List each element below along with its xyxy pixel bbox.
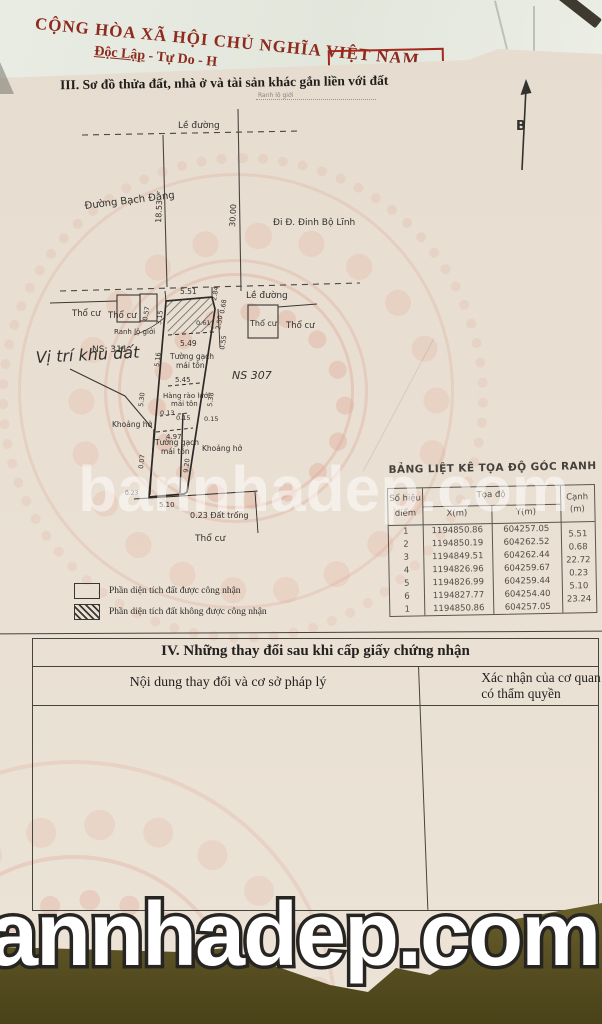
table-line	[33, 705, 598, 706]
tho-cu-label-3: Thổ cư	[249, 318, 278, 328]
dim-0-61: 0.61	[196, 319, 210, 327]
coord-x: 1194850.86	[423, 525, 492, 537]
dim-0-57: 0.57	[141, 306, 151, 322]
dim-0-15-a: 0.15	[176, 414, 190, 422]
tho-cu-label-4: Thổ cư	[285, 320, 315, 331]
section4-top-rule	[0, 631, 602, 635]
table-column-divider	[418, 666, 428, 910]
parcel-hatched-area	[166, 297, 214, 335]
coord-x: 1194827.77	[424, 590, 493, 602]
coord-x: 1194850.19	[423, 538, 492, 550]
road-edge-label-top: Lề đường	[178, 120, 220, 131]
brick-wall-label-1b: mái tôn	[176, 361, 205, 370]
section4-col1-header: Nội dung thay đổi và cơ sở pháp lý	[53, 675, 403, 691]
plot-location-handwriting: Vị trí khu đất	[35, 343, 140, 367]
road-boundary-label: Ranh lộ giới	[114, 328, 155, 336]
coord-y: 604262.52	[492, 537, 561, 549]
section3-title: III. Sơ đồ thửa đất, nhà ở và tài sản kh…	[60, 73, 389, 94]
coord-y: 604259.44	[493, 576, 562, 588]
north-arrow: B	[500, 78, 546, 178]
dim-0-68: 0.68	[218, 299, 228, 315]
edge-length: 5.51	[561, 529, 595, 541]
paper-edge	[494, 1, 508, 50]
section4-col2-header-line1: Xác nhận của cơ quan	[441, 670, 602, 686]
tho-cu-label-5: Thổ cư	[194, 533, 227, 544]
point-id: 1	[389, 526, 423, 538]
edge-length: 5.10	[562, 581, 596, 593]
north-label: B	[516, 119, 526, 134]
legend-swatch-hatched	[74, 604, 100, 620]
dim-5-51: 5.51	[180, 287, 197, 296]
point-id: 4	[389, 565, 423, 577]
legend-item-not-recognized: Phần diện tích đất không được công nhận	[74, 604, 267, 620]
dim-30-00: 30.00	[228, 204, 238, 227]
dim-0-55: 0.55	[218, 335, 228, 351]
coord-y: 604257.05	[493, 602, 562, 614]
tho-cu-label-2: Thổ cư	[107, 310, 137, 321]
section4-table: IV. Những thay đổi sau khi cấp giấy chứn…	[32, 638, 599, 911]
photographed-land-certificate: III. Sơ đồ thửa đất, nhà ở và tài sản kh…	[0, 0, 602, 1024]
motto-rest: - Tự Do - H	[144, 49, 217, 70]
coord-y: 604259.67	[492, 563, 561, 575]
watermark-middle: bannhadep.com	[78, 452, 569, 526]
dim-5-49: 5.49	[180, 339, 197, 348]
edge-length: 0.23	[562, 568, 596, 580]
ns-307-label: NS 307	[232, 369, 272, 382]
coord-y: 604254.40	[493, 589, 562, 601]
legend-label: Phần diện tích đất không được công nhận	[109, 607, 267, 617]
dim-18-53: 18.53	[154, 200, 164, 223]
dim-2-50: 2.50	[214, 315, 224, 331]
section4-title: IV. Những thay đổi sau khi cấp giấy chứn…	[33, 643, 598, 660]
legend-swatch-empty	[74, 583, 100, 599]
point-id: 1	[390, 604, 424, 616]
brick-wall-label-2a: Tường gạch	[154, 438, 199, 447]
table-line	[33, 666, 598, 667]
dim-5-45: 5.45	[175, 376, 191, 384]
dim-5-16: 5.16	[153, 352, 162, 367]
point-id: 5	[390, 578, 424, 590]
tho-cu-label-1: Thổ cư	[71, 308, 101, 319]
legend-label: Phần diện tích đất được công nhận	[109, 586, 241, 596]
coord-x: 1194849.51	[423, 551, 492, 563]
legend-item-recognized: Phần diện tích đất được công nhận	[74, 583, 241, 599]
paper-edge	[533, 6, 535, 58]
coord-x: 1194826.99	[424, 577, 493, 589]
dark-object-corner	[548, 0, 602, 28]
coord-y: 604262.44	[492, 550, 561, 562]
coord-x: 1194850.86	[424, 603, 493, 615]
mesh-fence-label-a: Hàng rào lưới	[163, 392, 210, 400]
dim-0-15-b: 0.15	[204, 415, 218, 423]
watermark-bottom-fill: annhadep.com	[0, 885, 599, 985]
edge-length: 22.72	[561, 555, 595, 567]
mesh-fence-label-b: mái tôn	[171, 400, 198, 408]
point-id: 2	[389, 539, 423, 551]
gap-label-left: Khoảng hở	[112, 420, 153, 429]
brick-wall-label-1a: Tường gạch	[169, 352, 214, 361]
point-id: 3	[389, 552, 423, 564]
dim-0-13: 0.13	[160, 409, 174, 417]
point-id: 6	[390, 591, 424, 603]
dim-2-84: 2.84	[210, 286, 220, 302]
dim-5-30: 5.30	[137, 392, 146, 407]
motto-underlined: Độc Lập	[94, 44, 146, 64]
road-edge-label-right: Lề đường	[246, 290, 288, 301]
edge-length: 0.68	[561, 542, 595, 554]
section4-col2-header-line2: có thẩm quyền	[441, 686, 601, 702]
edge-length: 23.24	[562, 594, 596, 606]
coord-x: 1194826.96	[423, 564, 492, 576]
watermark-bottom: annhadep.com annhadep.com	[0, 884, 599, 987]
dinh-bo-linh-street-label: Đi Đ. Đinh Bộ Lĩnh	[273, 217, 355, 228]
